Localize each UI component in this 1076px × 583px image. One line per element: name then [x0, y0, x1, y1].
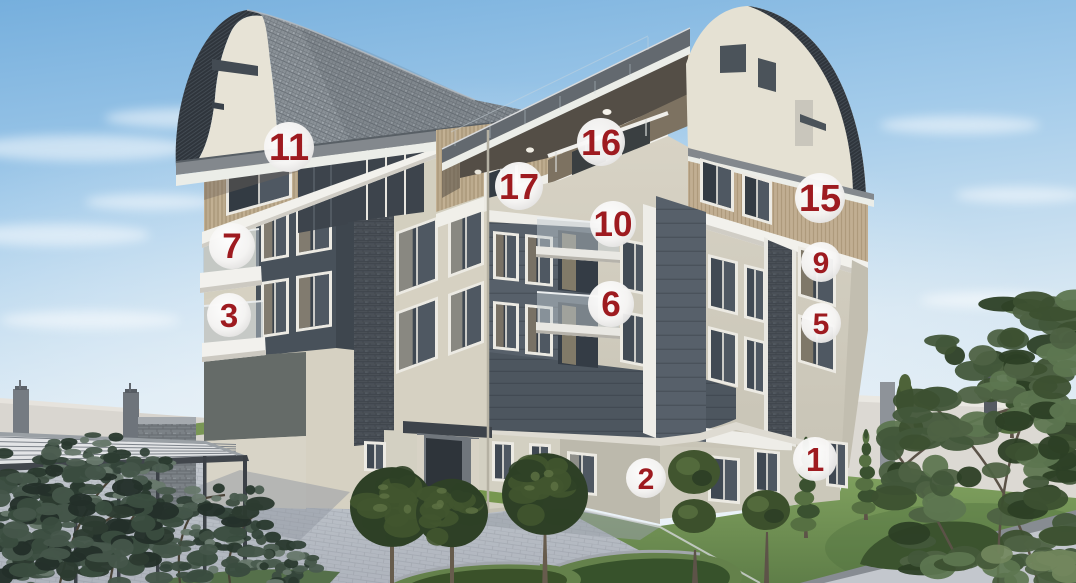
svg-text:16: 16 [581, 122, 621, 163]
svg-text:3: 3 [220, 297, 238, 334]
svg-text:6: 6 [601, 285, 620, 324]
svg-text:10: 10 [594, 205, 633, 244]
svg-text:7: 7 [222, 227, 241, 266]
svg-text:11: 11 [269, 127, 309, 169]
svg-text:5: 5 [813, 308, 830, 341]
svg-text:17: 17 [499, 166, 539, 207]
svg-text:15: 15 [799, 178, 841, 220]
svg-text:2: 2 [638, 463, 655, 496]
svg-text:1: 1 [806, 441, 824, 478]
svg-text:9: 9 [813, 247, 830, 280]
